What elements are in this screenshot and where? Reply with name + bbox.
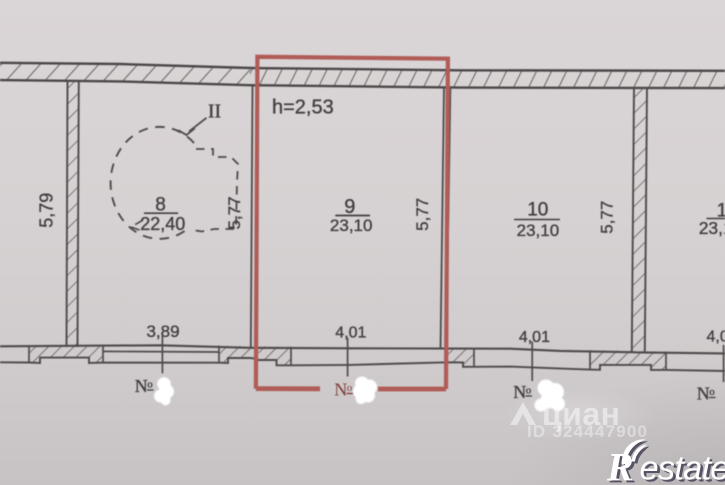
- svg-text:5,77: 5,77: [597, 201, 616, 234]
- svg-text:o: o: [147, 379, 153, 391]
- svg-text:5,79: 5,79: [36, 193, 56, 228]
- svg-text:N: N: [135, 376, 148, 396]
- svg-text:4,01: 4,01: [335, 324, 366, 341]
- svg-text:23,10: 23,10: [330, 216, 373, 235]
- svg-text:estate: estate: [640, 450, 725, 485]
- svg-text:3,89: 3,89: [146, 322, 179, 341]
- svg-text:4,01: 4,01: [519, 329, 550, 346]
- svg-text:4,01: 4,01: [707, 329, 725, 346]
- svg-text:II: II: [208, 101, 221, 123]
- svg-text:5,77: 5,77: [413, 198, 432, 231]
- svg-text:5,77: 5,77: [225, 196, 244, 229]
- svg-text:h=2,53: h=2,53: [272, 97, 334, 119]
- svg-text:R: R: [606, 445, 634, 485]
- svg-text:22,40: 22,40: [140, 214, 185, 234]
- svg-text:10: 10: [527, 200, 548, 221]
- svg-text:9: 9: [344, 196, 355, 218]
- svg-text:N: N: [697, 384, 710, 404]
- svg-text:N: N: [334, 380, 347, 400]
- svg-text:23,10: 23,10: [699, 218, 725, 238]
- svg-text:o: o: [347, 382, 353, 394]
- svg-text:23,10: 23,10: [517, 221, 560, 240]
- svg-text:o: o: [709, 386, 715, 398]
- svg-text:8: 8: [155, 195, 166, 216]
